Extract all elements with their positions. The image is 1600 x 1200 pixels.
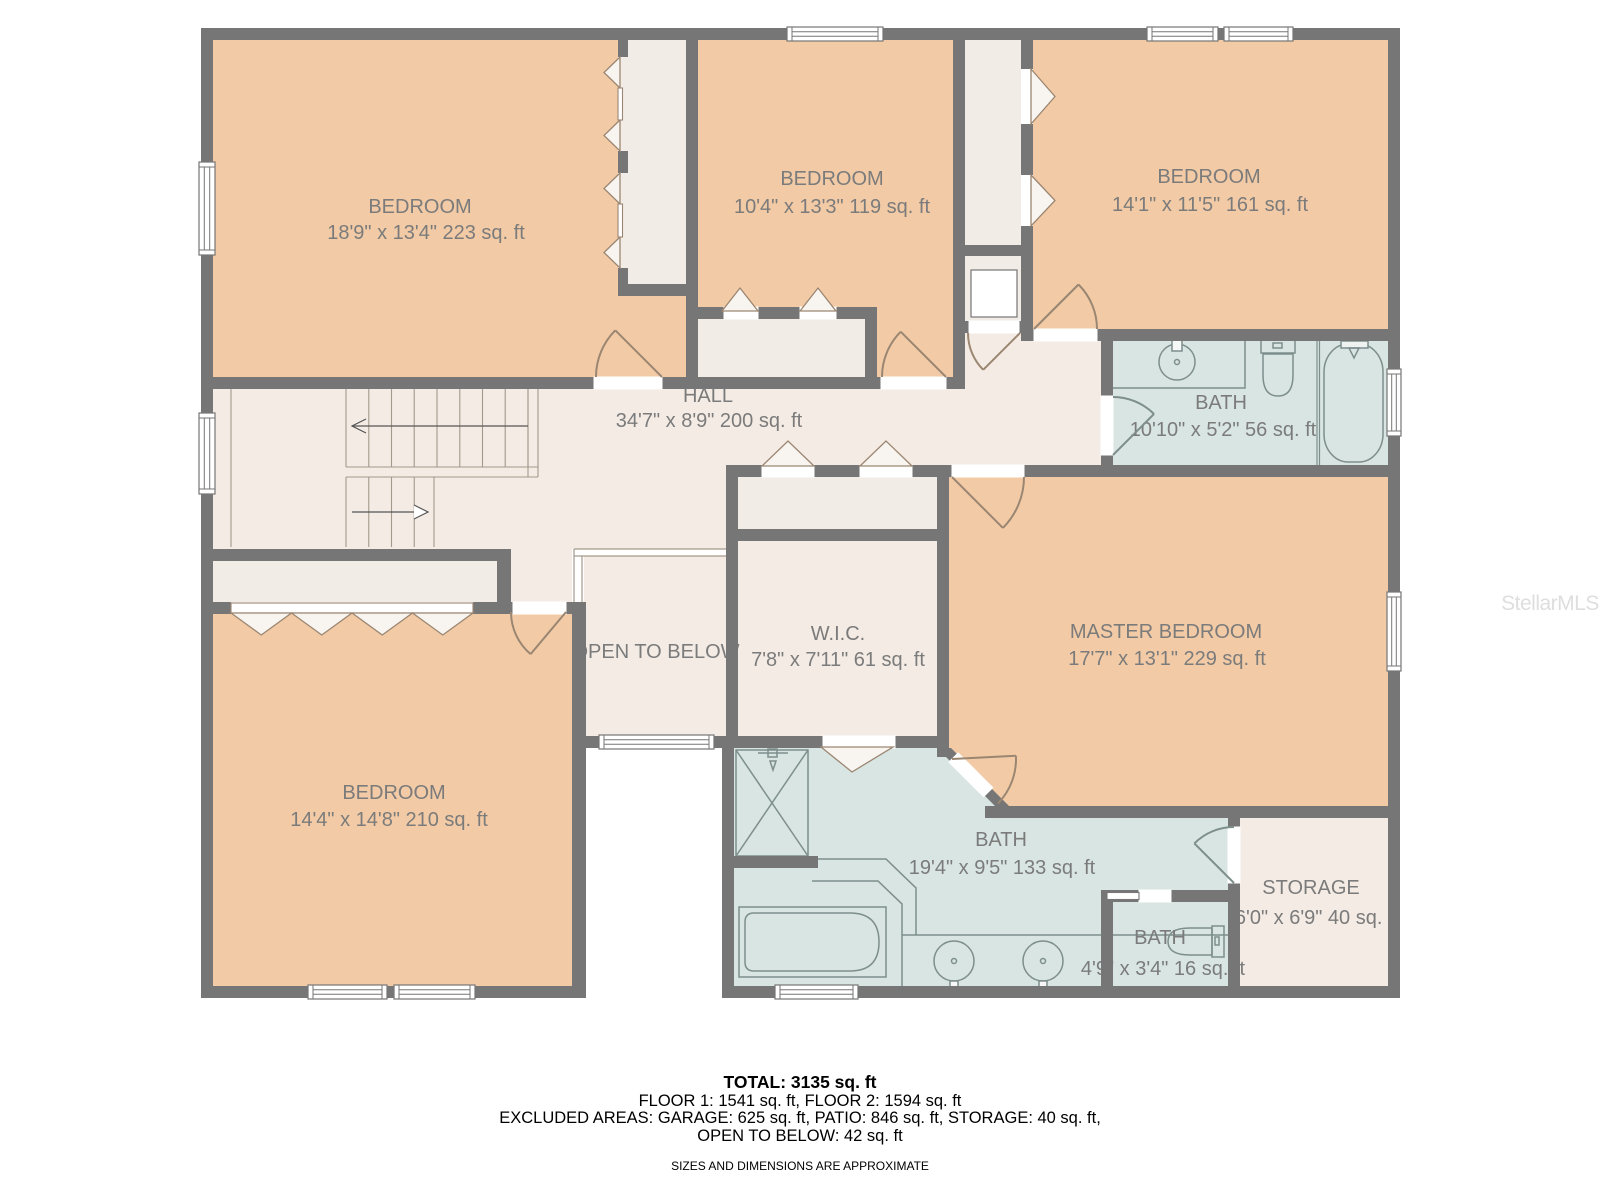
svg-text:34'7" x 8'9" 200 sq. ft: 34'7" x 8'9" 200 sq. ft [616,410,803,432]
svg-text:BATH: BATH [1134,927,1186,949]
svg-text:STORAGE: STORAGE [1262,877,1359,899]
svg-text:7'8" x 7'11" 61 sq. ft: 7'8" x 7'11" 61 sq. ft [751,649,925,671]
svg-text:MASTER BEDROOM: MASTER BEDROOM [1070,621,1262,643]
svg-text:BEDROOM: BEDROOM [780,168,883,190]
svg-text:14'4" x 14'8" 210 sq. ft: 14'4" x 14'8" 210 sq. ft [290,809,488,831]
svg-text:19'4" x 9'5" 133 sq. ft: 19'4" x 9'5" 133 sq. ft [909,857,1096,879]
svg-text:BEDROOM: BEDROOM [1157,166,1260,188]
svg-text:W.I.C.: W.I.C. [811,623,865,645]
svg-text:6'0" x 6'9" 40 sq. ft: 6'0" x 6'9" 40 sq. ft [1235,907,1400,929]
svg-text:BEDROOM: BEDROOM [342,782,445,804]
svg-text:17'7" x 13'1" 229 sq. ft: 17'7" x 13'1" 229 sq. ft [1068,648,1266,670]
svg-text:14'1" x 11'5" 161 sq. ft: 14'1" x 11'5" 161 sq. ft [1112,194,1308,216]
svg-text:TOTAL: 3135 sq. ft: TOTAL: 3135 sq. ft [724,1072,877,1092]
svg-text:10'4" x 13'3" 119 sq. ft: 10'4" x 13'3" 119 sq. ft [734,196,930,218]
svg-text:FLOOR 1: 1541 sq. ft, FLOOR 2:: FLOOR 1: 1541 sq. ft, FLOOR 2: 1594 sq. … [639,1092,962,1110]
svg-text:SIZES AND DIMENSIONS ARE APPRO: SIZES AND DIMENSIONS ARE APPROXIMATE [671,1159,929,1173]
svg-text:10'10" x 5'2" 56 sq. ft: 10'10" x 5'2" 56 sq. ft [1130,419,1317,441]
svg-text:18'9" x 13'4" 223 sq. ft: 18'9" x 13'4" 223 sq. ft [327,222,525,244]
svg-text:StellarMLS: StellarMLS [1501,592,1599,615]
svg-text:BEDROOM: BEDROOM [368,196,471,218]
svg-text:OPEN TO BELOW: 42 sq. ft: OPEN TO BELOW: 42 sq. ft [697,1127,903,1145]
svg-text:OPEN TO BELOW: OPEN TO BELOW [572,641,739,663]
svg-text:BATH: BATH [975,829,1027,851]
svg-text:EXCLUDED AREAS: GARAGE: 625 sq: EXCLUDED AREAS: GARAGE: 625 sq. ft, PATI… [499,1109,1101,1127]
svg-text:BATH: BATH [1195,392,1247,414]
